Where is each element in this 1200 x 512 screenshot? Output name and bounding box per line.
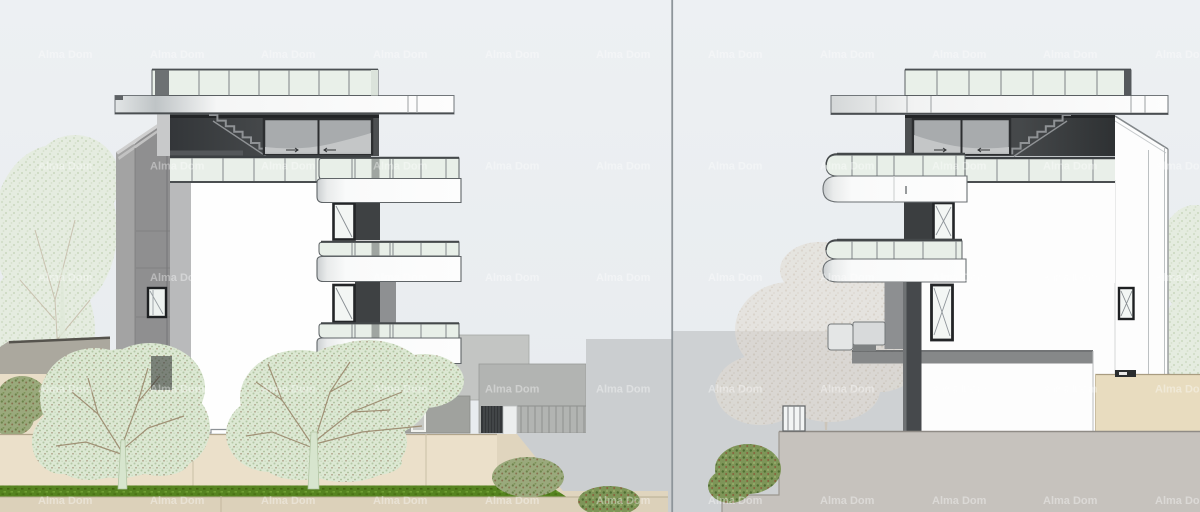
- svg-text:Alma Dom: Alma Dom: [485, 272, 540, 284]
- svg-text:Alma Dom: Alma Dom: [485, 495, 540, 507]
- svg-text:Alma Dom: Alma Dom: [708, 272, 763, 284]
- svg-text:Alma Dom: Alma Dom: [38, 161, 93, 173]
- svg-text:Alma Dom: Alma Dom: [261, 49, 316, 61]
- svg-text:Alma Dom: Alma Dom: [261, 161, 316, 173]
- svg-text:Alma Dom: Alma Dom: [820, 495, 875, 507]
- svg-text:Alma Dom: Alma Dom: [708, 161, 763, 173]
- svg-text:Alma Dom: Alma Dom: [820, 161, 875, 173]
- svg-text:Alma Dom: Alma Dom: [1043, 272, 1098, 284]
- svg-text:Alma Dom: Alma Dom: [373, 272, 428, 284]
- svg-text:Alma Dom: Alma Dom: [150, 495, 205, 507]
- svg-text:Alma Dom: Alma Dom: [820, 49, 875, 61]
- svg-text:Alma Dom: Alma Dom: [373, 161, 428, 173]
- svg-text:Alma Dom: Alma Dom: [932, 495, 987, 507]
- svg-text:Alma Dom: Alma Dom: [596, 272, 651, 284]
- svg-text:Alma Dom: Alma Dom: [932, 49, 987, 61]
- svg-text:Alma Dom: Alma Dom: [150, 49, 205, 61]
- svg-text:Alma Dom: Alma Dom: [596, 495, 651, 507]
- svg-text:Alma Dom: Alma Dom: [708, 49, 763, 61]
- svg-text:Alma Dom: Alma Dom: [261, 495, 316, 507]
- svg-text:Alma Dom: Alma Dom: [373, 384, 428, 396]
- svg-text:Alma Dom: Alma Dom: [708, 384, 763, 396]
- svg-text:Alma Dom: Alma Dom: [261, 272, 316, 284]
- svg-text:Alma Dom: Alma Dom: [1155, 161, 1200, 173]
- svg-text:Alma Dom: Alma Dom: [373, 495, 428, 507]
- svg-text:Alma Dom: Alma Dom: [1155, 272, 1200, 284]
- svg-text:Alma Dom: Alma Dom: [1155, 384, 1200, 396]
- svg-text:Alma Dom: Alma Dom: [1043, 384, 1098, 396]
- svg-text:Alma Dom: Alma Dom: [932, 161, 987, 173]
- svg-text:Alma Dom: Alma Dom: [1043, 49, 1098, 61]
- svg-text:Alma Dom: Alma Dom: [38, 49, 93, 61]
- svg-text:Alma Dom: Alma Dom: [485, 161, 540, 173]
- svg-text:Alma Dom: Alma Dom: [373, 49, 428, 61]
- svg-text:Alma Dom: Alma Dom: [1043, 161, 1098, 173]
- svg-text:Alma Dom: Alma Dom: [1155, 495, 1200, 507]
- svg-text:Alma Dom: Alma Dom: [596, 161, 651, 173]
- svg-text:Alma Dom: Alma Dom: [820, 384, 875, 396]
- svg-text:Alma Dom: Alma Dom: [150, 272, 205, 284]
- svg-text:Alma Dom: Alma Dom: [485, 49, 540, 61]
- svg-text:Alma Dom: Alma Dom: [820, 272, 875, 284]
- svg-text:Alma Dom: Alma Dom: [38, 495, 93, 507]
- svg-text:Alma Dom: Alma Dom: [596, 49, 651, 61]
- svg-text:Alma Dom: Alma Dom: [38, 384, 93, 396]
- svg-text:Alma Dom: Alma Dom: [1043, 495, 1098, 507]
- svg-text:Alma Dom: Alma Dom: [150, 161, 205, 173]
- svg-text:Alma Dom: Alma Dom: [261, 384, 316, 396]
- svg-text:Alma Dom: Alma Dom: [596, 384, 651, 396]
- svg-text:Alma Dom: Alma Dom: [1155, 49, 1200, 61]
- svg-text:Alma Dom: Alma Dom: [708, 495, 763, 507]
- svg-text:Alma Dom: Alma Dom: [932, 384, 987, 396]
- svg-text:Alma Dom: Alma Dom: [485, 384, 540, 396]
- svg-text:Alma Dom: Alma Dom: [38, 272, 93, 284]
- svg-text:Alma Dom: Alma Dom: [150, 384, 205, 396]
- svg-text:Alma Dom: Alma Dom: [932, 272, 987, 284]
